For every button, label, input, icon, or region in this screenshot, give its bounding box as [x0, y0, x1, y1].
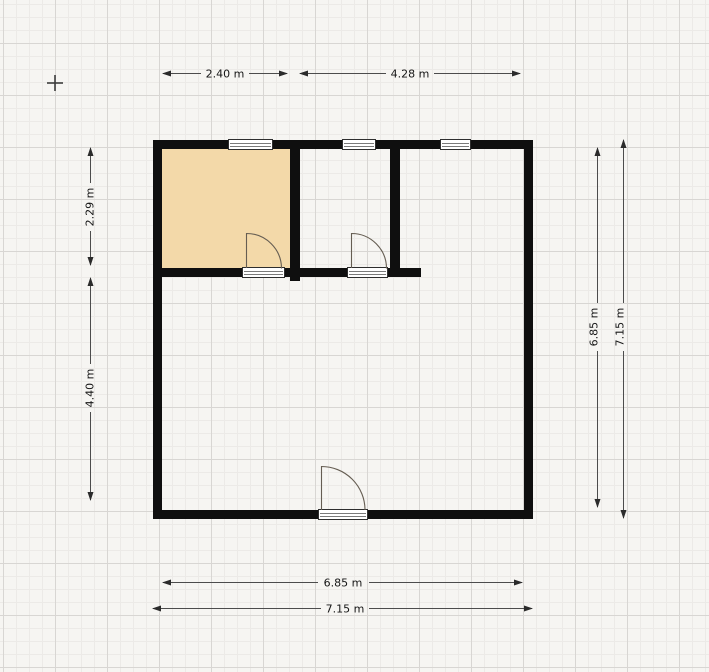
dim-label-bottom-1: 6.85 m — [324, 578, 363, 589]
dim-label-top-2: 4.28 m — [391, 69, 430, 80]
dim-label-right-2: 7.15 m — [615, 308, 626, 347]
door-sill-line-icon — [244, 271, 283, 275]
door-sill-line-icon — [349, 271, 386, 275]
window-pane-icon — [230, 143, 271, 147]
floorplan-canvas[interactable]: 2.40 m 4.28 m 2.29 m 4.40 m 6.85 m 7.15 … — [0, 0, 709, 672]
dim-label-left-1: 2.29 m — [85, 188, 96, 227]
door-2-swing[interactable] — [352, 234, 387, 269]
crosshair-icon — [47, 75, 63, 91]
wall-interior-vertical-1[interactable] — [290, 149, 300, 281]
door-3-sill[interactable] — [318, 509, 368, 520]
window-pane-icon — [442, 143, 469, 147]
wall-left[interactable] — [153, 140, 162, 519]
door-3-swing[interactable] — [322, 467, 366, 511]
dim-label-right-1: 6.85 m — [589, 308, 600, 347]
window-1[interactable] — [228, 139, 273, 150]
door-1-sill[interactable] — [242, 267, 285, 278]
window-pane-icon — [344, 143, 374, 147]
wall-mid-horizontal-a[interactable] — [162, 268, 242, 277]
window-2[interactable] — [342, 139, 376, 150]
dim-label-bottom-2: 7.15 m — [326, 604, 365, 615]
room-fill-top-left[interactable] — [162, 149, 290, 268]
window-3[interactable] — [440, 139, 471, 150]
door-2-sill[interactable] — [347, 267, 388, 278]
door-sill-line-icon — [320, 513, 366, 517]
dim-label-left-2: 4.40 m — [85, 369, 96, 408]
dim-label-top-1: 2.40 m — [206, 69, 245, 80]
annotation-overlay — [0, 0, 709, 672]
wall-interior-vertical-2[interactable] — [390, 149, 400, 277]
wall-right[interactable] — [524, 140, 533, 519]
